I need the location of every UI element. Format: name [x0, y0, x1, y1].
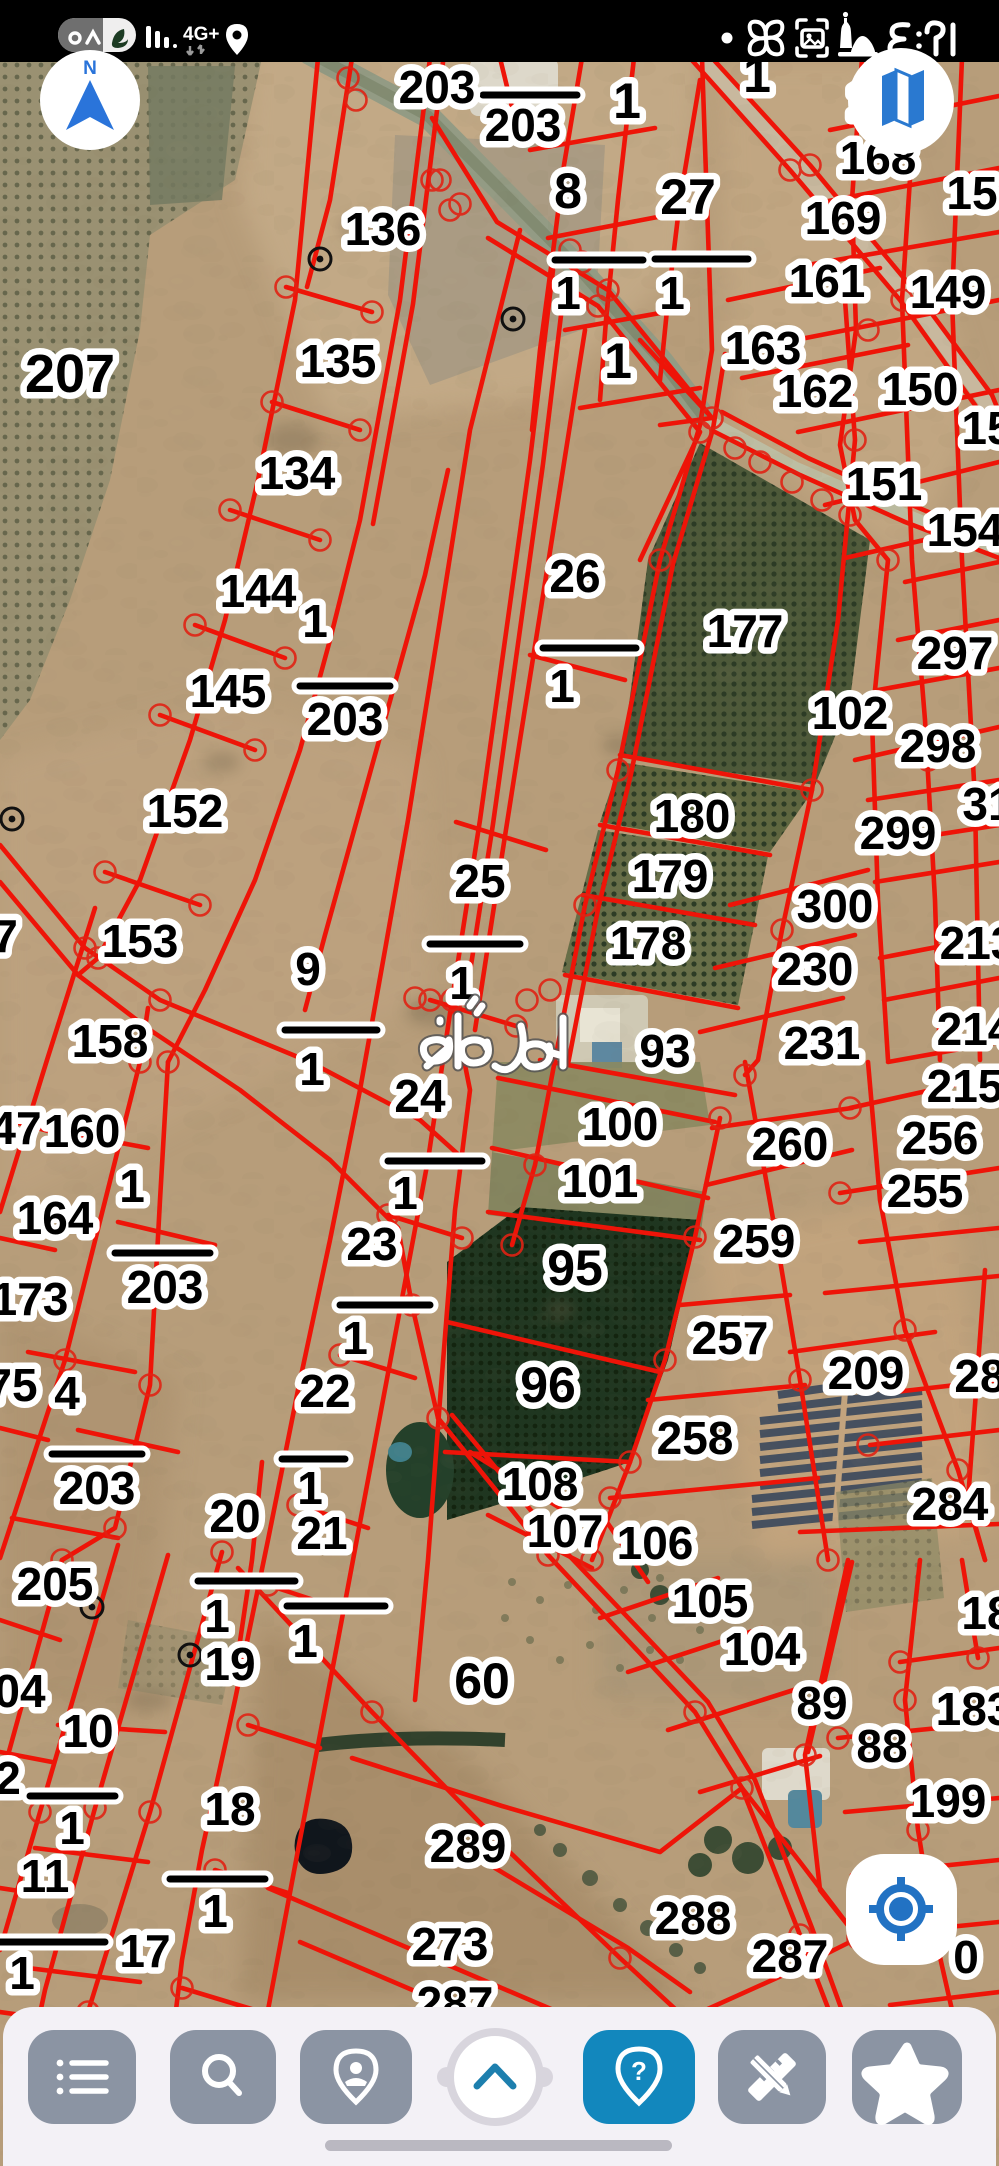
svg-text:4: 4 — [54, 1367, 80, 1419]
svg-text:10: 10 — [62, 1705, 113, 1757]
svg-text:93: 93 — [639, 1025, 690, 1077]
svg-text:258: 258 — [657, 1412, 734, 1464]
svg-text:273: 273 — [412, 1918, 489, 1970]
svg-text:104: 104 — [724, 1623, 801, 1675]
svg-text:15: 15 — [961, 402, 999, 454]
svg-text:105: 105 — [672, 1575, 749, 1627]
svg-text:95: 95 — [547, 1240, 603, 1296]
svg-text:135: 135 — [300, 335, 377, 387]
svg-text:19: 19 — [204, 1638, 255, 1690]
svg-text:136: 136 — [345, 203, 422, 255]
svg-text:300: 300 — [797, 880, 874, 932]
svg-text:17: 17 — [119, 1925, 170, 1977]
svg-text:26: 26 — [549, 550, 600, 602]
svg-text:203: 203 — [59, 1462, 136, 1514]
svg-text:89: 89 — [796, 1677, 847, 1729]
svg-text:161: 161 — [789, 255, 866, 307]
svg-text:88: 88 — [856, 1720, 907, 1772]
svg-text:1: 1 — [555, 267, 581, 319]
svg-text:183: 183 — [936, 1683, 999, 1735]
svg-text:259: 259 — [719, 1215, 796, 1267]
svg-text:151: 151 — [846, 458, 923, 510]
svg-text:284: 284 — [912, 1478, 989, 1530]
svg-text:1: 1 — [659, 267, 685, 319]
svg-text:257: 257 — [692, 1312, 769, 1364]
svg-text:1: 1 — [9, 1947, 35, 1999]
svg-text:15: 15 — [946, 167, 997, 219]
svg-text:20: 20 — [209, 1490, 260, 1542]
svg-text:9: 9 — [295, 943, 321, 995]
svg-text:1: 1 — [204, 1590, 230, 1642]
svg-text:1: 1 — [292, 1615, 318, 1667]
svg-text:100: 100 — [582, 1098, 659, 1150]
svg-text:?: ? — [631, 2056, 647, 2086]
svg-text:24: 24 — [394, 1070, 446, 1122]
svg-text:2: 2 — [0, 1752, 21, 1804]
svg-text:1: 1 — [342, 1312, 368, 1364]
svg-text:21: 21 — [296, 1507, 347, 1559]
svg-text:1: 1 — [299, 1043, 325, 1095]
svg-text:31: 31 — [962, 778, 999, 830]
svg-text:215: 215 — [927, 1060, 999, 1112]
svg-text:169: 169 — [805, 192, 882, 244]
svg-text:144: 144 — [220, 565, 297, 617]
svg-text:160: 160 — [44, 1105, 121, 1157]
svg-text:203: 203 — [399, 61, 476, 113]
svg-text:101: 101 — [562, 1155, 639, 1207]
svg-text:145: 145 — [190, 665, 267, 717]
svg-text:1: 1 — [604, 333, 632, 389]
svg-text:203: 203 — [485, 99, 562, 151]
svg-text:256: 256 — [902, 1112, 979, 1164]
svg-text:199: 199 — [910, 1775, 987, 1827]
svg-text:289: 289 — [430, 1820, 507, 1872]
svg-text:22: 22 — [299, 1365, 350, 1417]
svg-text:213: 213 — [940, 917, 999, 969]
svg-text:178: 178 — [610, 917, 687, 969]
svg-text:203: 203 — [307, 693, 384, 745]
svg-text:154: 154 — [927, 504, 999, 556]
svg-text:255: 255 — [887, 1165, 964, 1217]
svg-text:107: 107 — [527, 1505, 604, 1557]
svg-text:287: 287 — [752, 1930, 829, 1982]
svg-text:297: 297 — [917, 627, 994, 679]
svg-text:158: 158 — [72, 1015, 149, 1067]
svg-text:177: 177 — [707, 605, 784, 657]
svg-text:8: 8 — [554, 163, 582, 219]
svg-text:164: 164 — [17, 1192, 94, 1244]
svg-text:27: 27 — [660, 169, 716, 225]
svg-text:260: 260 — [752, 1118, 829, 1170]
svg-text:4G+: 4G+ — [183, 24, 219, 45]
svg-text:75: 75 — [0, 1359, 38, 1411]
svg-text:149: 149 — [910, 266, 987, 318]
svg-text:230: 230 — [777, 943, 854, 995]
svg-text:1: 1 — [59, 1802, 85, 1854]
svg-text:28: 28 — [954, 1350, 999, 1402]
svg-text:134: 134 — [259, 447, 336, 499]
svg-text:60: 60 — [454, 1653, 510, 1709]
svg-text:162: 162 — [777, 365, 854, 417]
svg-text:1: 1 — [202, 1885, 228, 1937]
svg-text:1: 1 — [119, 1160, 145, 1212]
svg-text:231: 231 — [784, 1017, 861, 1069]
svg-text:153: 153 — [102, 915, 179, 967]
svg-text:1: 1 — [392, 1167, 418, 1219]
svg-text:18: 18 — [961, 1587, 999, 1639]
svg-text:7: 7 — [0, 910, 18, 962]
svg-text:203: 203 — [127, 1261, 204, 1313]
svg-text:106: 106 — [617, 1517, 694, 1569]
svg-text:209: 209 — [828, 1347, 905, 1399]
svg-text:108: 108 — [502, 1458, 579, 1510]
svg-text:47: 47 — [0, 1102, 42, 1154]
svg-text:288: 288 — [655, 1892, 732, 1944]
svg-text:173: 173 — [0, 1273, 68, 1325]
svg-text:150: 150 — [882, 363, 959, 415]
svg-text:214: 214 — [937, 1003, 999, 1055]
svg-text:96: 96 — [520, 1357, 576, 1413]
svg-text:298: 298 — [900, 720, 977, 772]
svg-text:205: 205 — [17, 1558, 94, 1610]
svg-text:1: 1 — [549, 660, 575, 712]
svg-text:23: 23 — [346, 1218, 397, 1270]
svg-text:152: 152 — [147, 785, 224, 837]
svg-text:1: 1 — [613, 73, 641, 129]
svg-text:N: N — [83, 58, 97, 79]
svg-text:299: 299 — [860, 807, 937, 859]
svg-text:1: 1 — [302, 595, 328, 647]
svg-text:25: 25 — [454, 855, 505, 907]
svg-text:207: 207 — [25, 344, 115, 404]
svg-text:18: 18 — [204, 1783, 255, 1835]
svg-text:102: 102 — [812, 687, 889, 739]
svg-text:179: 179 — [632, 850, 709, 902]
svg-text:11: 11 — [21, 1850, 70, 1902]
svg-text:180: 180 — [654, 790, 731, 842]
svg-text:04: 04 — [0, 1665, 46, 1717]
